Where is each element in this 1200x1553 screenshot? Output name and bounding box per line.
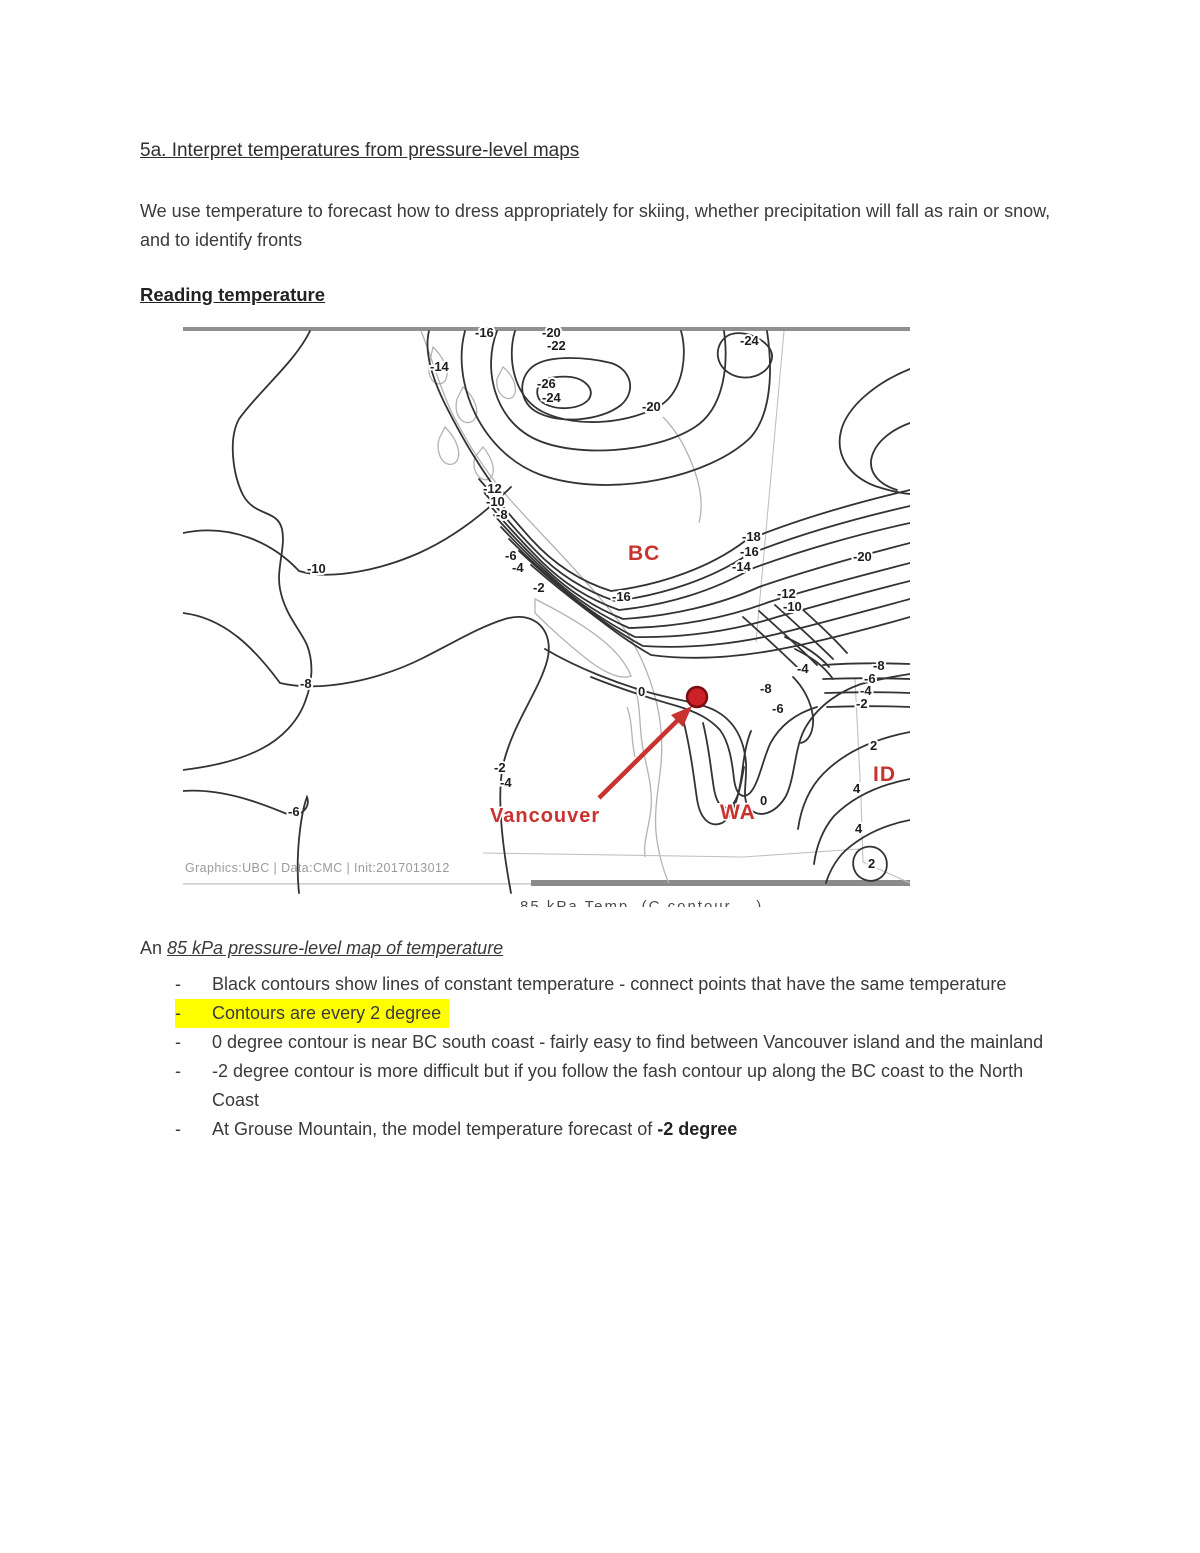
bullet-dash: - (175, 1028, 212, 1057)
contour-value-label: -24 (740, 333, 760, 348)
contour-value-label: -4 (500, 775, 512, 790)
map-caption-text: 85 kPa Temp. (C contour ...) (520, 898, 910, 907)
contour-value-label: -2 (856, 696, 868, 711)
region-label-id: ID (873, 763, 896, 786)
intro-paragraph: We use temperature to forecast how to dr… (140, 197, 1060, 255)
notes-list: -Black contours show lines of constant t… (140, 970, 1100, 1144)
contour-value-label: 2 (868, 856, 875, 871)
bullet-text: At Grouse Mountain, the model temperatur… (212, 1115, 737, 1144)
contour-value-label: -2 (533, 580, 545, 595)
vancouver-arrow-line (599, 718, 680, 798)
contour-value-label: 0 (638, 684, 645, 699)
region-label-vancouver: Vancouver (490, 805, 600, 827)
bullet-text: Contours are every 2 degree (212, 999, 441, 1028)
contour-value-label: 4 (855, 821, 863, 836)
contour-value-label: -6 (772, 701, 784, 716)
map-caption-cropped: 85 kPa Temp. (C contour ...) (183, 898, 910, 907)
contour-value-label: 2 (870, 738, 877, 753)
contour-value-label: -22 (547, 338, 566, 353)
bullet-item: --2 degree contour is more difficult but… (175, 1057, 1057, 1115)
pressure-level-map: -16-20-22-24-14-26-24-20-12-10-8-18-16-1… (183, 327, 910, 897)
bullet-text: -2 degree contour is more difficult but … (212, 1057, 1057, 1115)
contour-value-label: -8 (300, 676, 312, 691)
contour-value-label: -8 (760, 681, 772, 696)
red-annotation-layer: BCWAIDVancouver (490, 542, 896, 827)
contour-value-label: -4 (797, 661, 809, 676)
notes-section: An 85 kPa pressure-level map of temperat… (140, 934, 1100, 1144)
map-attribution: Graphics:UBC | Data:CMC | Init:201701301… (185, 861, 450, 875)
bullet-bold-text: -2 degree (657, 1119, 737, 1139)
bullet-item: -At Grouse Mountain, the model temperatu… (175, 1115, 737, 1144)
bullet-dash: - (175, 970, 212, 999)
lead-italic: 85 kPa pressure-level map of temperature (167, 938, 503, 958)
bullet-text: 0 degree contour is near BC south coast … (212, 1028, 1043, 1057)
region-label-bc: BC (628, 542, 660, 565)
contour-value-label: 4 (853, 781, 861, 796)
bullet-text: Black contours show lines of constant te… (212, 970, 1006, 999)
contour-value-label: -10 (783, 599, 802, 614)
notes-lead: An 85 kPa pressure-level map of temperat… (140, 934, 1100, 963)
region-label-wa: WA (720, 801, 756, 824)
bullet-item: -Black contours show lines of constant t… (175, 970, 1006, 999)
contour-value-label: -18 (742, 529, 761, 544)
contour-value-label: -8 (496, 507, 508, 522)
contour-value-label: -2 (494, 760, 506, 775)
contour-value-label: -16 (740, 544, 759, 559)
bullet-dash: - (175, 999, 212, 1028)
page-title: 5a. Interpret temperatures from pressure… (140, 140, 579, 162)
contour-label-layer: -16-20-22-24-14-26-24-20-12-10-8-18-16-1… (288, 327, 885, 871)
lead-plain: An (140, 938, 167, 958)
contour-value-label: -16 (612, 589, 631, 604)
bullet-dash: - (175, 1057, 212, 1086)
section-heading: Reading temperature (140, 284, 325, 306)
contour-value-label: -14 (732, 559, 752, 574)
contour-value-label: -10 (307, 561, 326, 576)
contour-value-label: -14 (430, 359, 450, 374)
bullet-dash: - (175, 1115, 212, 1144)
document-page: 5a. Interpret temperatures from pressure… (0, 0, 1200, 1553)
contour-value-label: -4 (512, 560, 524, 575)
grouse-mountain-marker-dot (687, 687, 707, 707)
bullet-item-highlighted: -Contours are every 2 degree (175, 999, 449, 1028)
contour-value-label: -16 (475, 327, 494, 340)
contour-value-label: -20 (642, 399, 661, 414)
contour-value-label: -26 (537, 376, 556, 391)
contour-value-label: -6 (288, 804, 300, 819)
coastline-layer (421, 331, 910, 883)
contour-value-label: -20 (853, 549, 872, 564)
contour-value-label: 0 (760, 793, 767, 808)
contour-value-label: -24 (542, 390, 562, 405)
bullet-item: -0 degree contour is near BC south coast… (175, 1028, 1043, 1057)
